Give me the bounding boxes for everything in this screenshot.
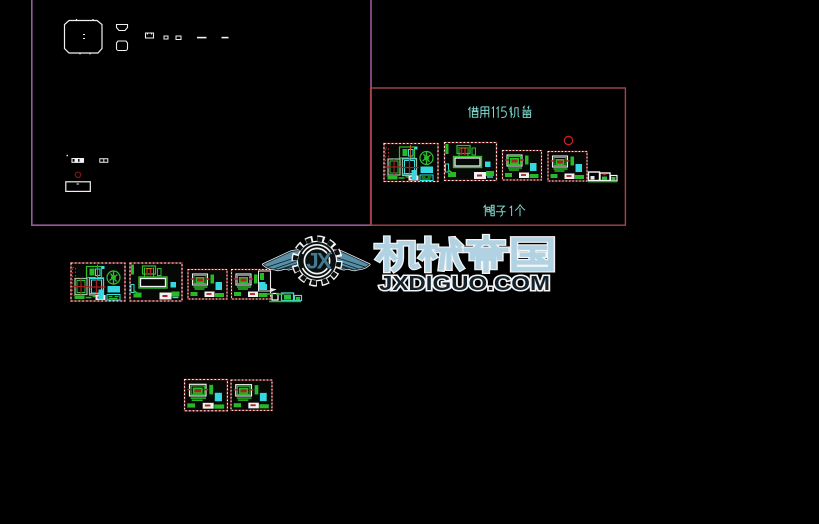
svg-text:JXDIGUO.COM: JXDIGUO.COM	[379, 273, 550, 295]
svg-text:JX: JX	[306, 249, 332, 274]
